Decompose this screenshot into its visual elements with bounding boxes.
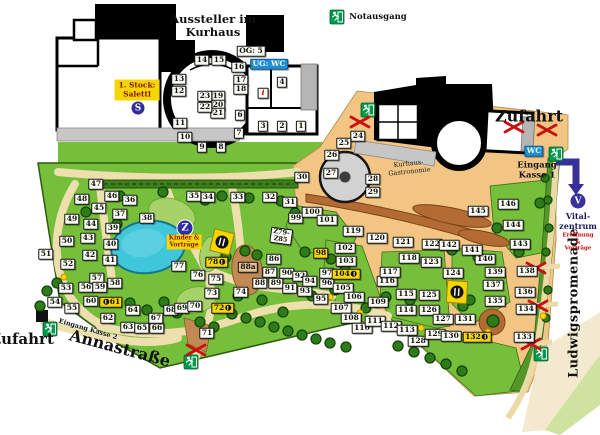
tree-icon [52,278,62,288]
z-block-label: Z79- Z85 [269,227,293,246]
tree-icon [42,286,52,296]
tree-icon [457,366,467,376]
tree-icon [425,353,435,363]
tree-icon [514,247,524,257]
rotunda [434,118,484,168]
tree-icon [240,246,250,256]
tree-icon [158,187,168,197]
tree-icon [269,322,279,332]
tree-icon [244,193,254,203]
kinder-label: Kinder & Vorträge [167,235,202,250]
tree-icon [35,301,45,311]
vitalzentrum-badge: V [571,194,586,209]
tree-icon [276,196,286,206]
tree-icon [340,261,350,271]
ug-wc-label: UG: WC [250,59,288,70]
bandstand [320,152,370,202]
tree-icon [115,191,125,201]
tree-icon [252,250,262,260]
gastronomy-sign-icon [446,280,467,303]
lamp-icon [357,310,363,316]
tree-icon [257,295,267,305]
tree-icon [473,252,483,262]
wc-label: WC [524,146,543,157]
tree-icon [492,223,502,233]
vitalzentrum-name: Vital- zentrum [559,211,597,231]
tree-icon [409,347,419,357]
tree-icon [300,247,310,257]
tree-icon [447,245,457,255]
tree-icon [544,286,552,294]
lamp-icon [540,313,546,319]
tree-icon [209,322,219,332]
lamp-icon [61,274,67,280]
stairs-badge: S [131,101,146,116]
park-map-svg [0,0,600,435]
tree-icon [542,248,550,256]
notausgang-icon [549,147,563,161]
tree-icon [405,295,415,305]
tree-icon [142,305,152,315]
notausgang-icon [330,10,344,24]
tree-icon [311,334,321,344]
tree-icon [487,315,499,327]
tree-icon [217,191,227,201]
tree-icon [545,224,553,232]
zufahrt-left-label: Zufahrt [0,330,54,348]
zufahrt-right-label: Zufahrt [495,107,563,126]
vitalzentrum-sub: Eröffnung & Vorträge [562,232,593,252]
tree-icon [278,307,288,317]
tree-icon [255,317,265,327]
legend-notausgang-label: Notausgang [349,12,406,22]
tree-icon [544,196,552,204]
notausgang-icon [361,103,375,117]
tree-icon [326,254,336,264]
og5-label: OG: 5 [237,46,266,57]
eingang-kasse1-label: Eingang Kasse 1 [517,162,556,181]
notausgang-icon [184,355,198,369]
tree-icon [290,208,300,218]
tree-icon [297,330,307,340]
tree-icon [325,338,335,348]
lamp-icon [327,294,333,300]
tree-icon [393,341,403,351]
tree-icon [159,297,169,307]
tree-icon [227,309,237,319]
map-title: Aussteller im Kurhaus [170,13,256,39]
fairground-map: 123467891011121314151617181920212223i242… [0,0,600,435]
tree-icon [241,313,251,323]
gate-square [36,310,48,322]
tree-icon [112,219,122,229]
tree-icon [283,326,293,336]
lamp-icon [485,329,491,335]
lamp-icon [418,325,424,331]
salettl-label: 1. Stock: Salettl [115,80,160,101]
tree-icon [233,291,243,301]
tree-icon [341,342,351,352]
tree-icon [381,292,391,302]
vitalzentrum-arrow [556,162,584,195]
tree-icon [441,359,451,369]
tree-icon [195,317,205,327]
tree-icon [307,291,317,301]
sidewalk [57,128,239,141]
tree-icon [172,308,182,318]
tree-icon [81,207,91,217]
tree-icon [330,285,340,295]
tree-icon [125,298,135,308]
tree-icon [200,195,210,205]
